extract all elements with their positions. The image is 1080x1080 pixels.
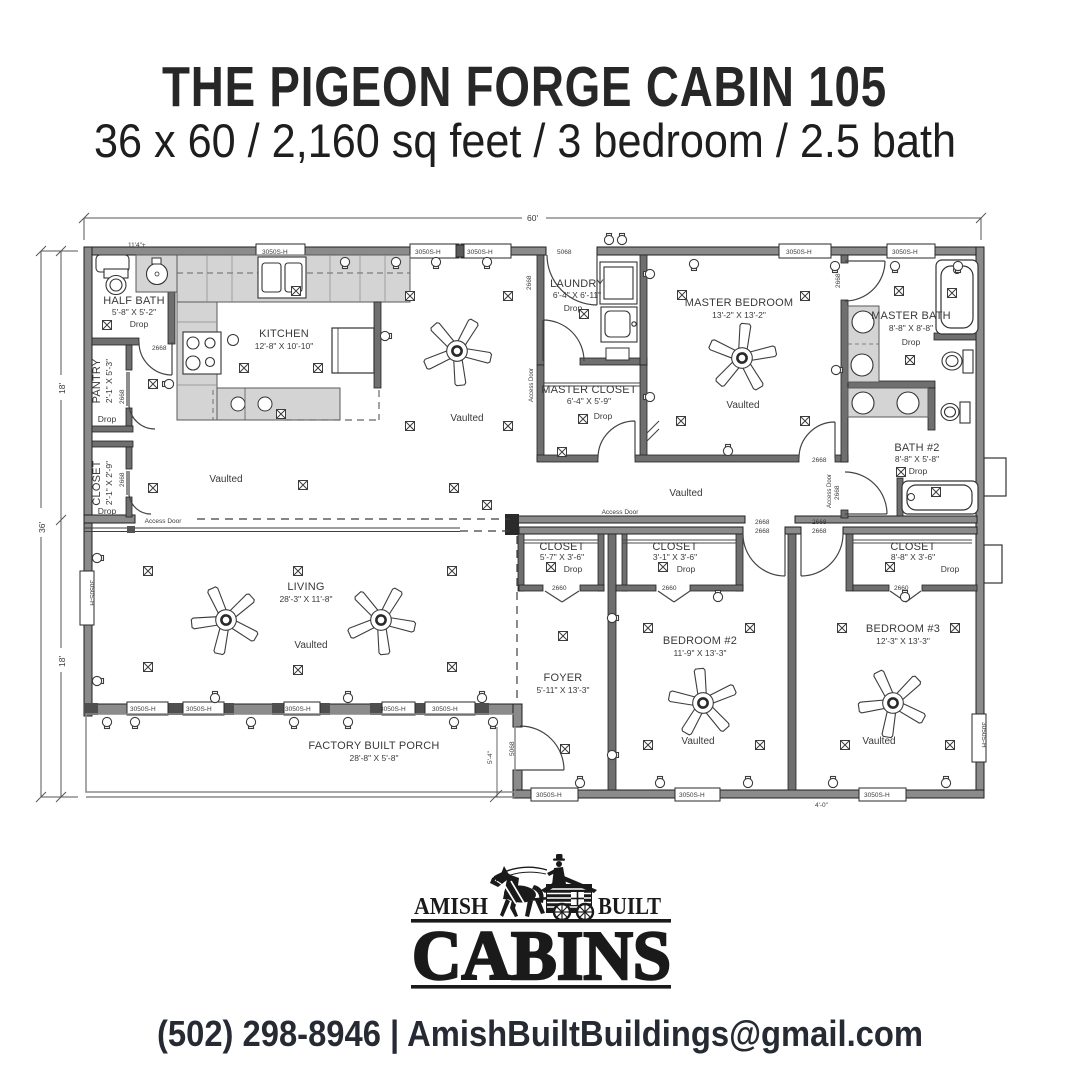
svg-text:5068: 5068 (509, 741, 516, 756)
svg-text:3050S-H: 3050S-H (892, 249, 918, 256)
svg-text:6'-4" X 6'-11": 6'-4" X 6'-11" (553, 290, 601, 300)
svg-text:3050S-H: 3050S-H (130, 706, 156, 713)
svg-text:6'-4" X 5'-9": 6'-4" X 5'-9" (567, 396, 611, 406)
svg-text:18': 18' (57, 656, 67, 667)
svg-text:2668: 2668 (119, 389, 126, 404)
svg-text:2668: 2668 (812, 528, 827, 535)
svg-text:8'-8" X 3'-6": 8'-8" X 3'-6" (891, 552, 935, 562)
svg-text:2668: 2668 (812, 519, 827, 526)
svg-text:11'-9" X 13'-3": 11'-9" X 13'-3" (673, 648, 726, 658)
svg-text:2668: 2668 (835, 273, 842, 288)
svg-text:13'-2" X 13'-2": 13'-2" X 13'-2" (712, 310, 766, 320)
svg-text:Drop: Drop (909, 466, 928, 476)
svg-text:BEDROOM #3: BEDROOM #3 (866, 623, 940, 635)
svg-text:2660: 2660 (552, 585, 567, 592)
svg-text:8'-8" X 5'-8": 8'-8" X 5'-8" (895, 454, 939, 464)
svg-text:12'-8" X 10'-10": 12'-8" X 10'-10" (255, 341, 313, 351)
svg-text:5068: 5068 (557, 249, 572, 256)
svg-text:Drop: Drop (594, 411, 613, 421)
svg-text:Vaulted: Vaulted (669, 488, 702, 499)
svg-text:LAUNDRY: LAUNDRY (550, 278, 604, 290)
svg-text:2660: 2660 (662, 585, 677, 592)
svg-text:3050S-H: 3050S-H (285, 706, 311, 713)
svg-text:Access Door: Access Door (145, 518, 183, 525)
svg-text:MASTER BATH: MASTER BATH (871, 310, 951, 322)
svg-text:KITCHEN: KITCHEN (259, 328, 309, 340)
svg-text:HALF BATH: HALF BATH (103, 295, 165, 307)
svg-text:2668: 2668 (755, 519, 770, 526)
svg-text:MASTER CLOSET: MASTER CLOSET (541, 384, 637, 396)
svg-text:60': 60' (527, 213, 538, 223)
svg-text:FACTORY BUILT PORCH: FACTORY BUILT PORCH (308, 740, 439, 752)
svg-text:3050S-H: 3050S-H (415, 249, 441, 256)
svg-text:Access Door: Access Door (827, 474, 833, 508)
svg-text:THE PIGEON FORGE CABIN 105: THE PIGEON FORGE CABIN 105 (162, 55, 887, 119)
svg-text:2'-1" X 2'-9": 2'-1" X 2'-9" (104, 461, 114, 505)
svg-text:2668: 2668 (119, 472, 126, 487)
svg-text:3050S-H: 3050S-H (864, 792, 890, 799)
svg-text:5'-11" X 13'-3": 5'-11" X 13'-3" (536, 685, 589, 695)
svg-text:Drop: Drop (902, 337, 921, 347)
svg-text:Drop: Drop (564, 564, 583, 574)
svg-text:3050S-H: 3050S-H (432, 706, 458, 713)
svg-text:Vaulted: Vaulted (450, 413, 483, 424)
svg-text:2668: 2668 (755, 528, 770, 535)
svg-text:4'-0": 4'-0" (815, 802, 829, 809)
svg-text:FOYER: FOYER (544, 672, 583, 684)
svg-text:5'-8" X 5'-2": 5'-8" X 5'-2" (112, 307, 156, 317)
svg-text:3050S-H: 3050S-H (679, 792, 705, 799)
svg-text:3050S-H: 3050S-H (786, 249, 812, 256)
svg-text:2'-1" X 5'-3": 2'-1" X 5'-3" (104, 359, 114, 403)
svg-text:Vaulted: Vaulted (862, 736, 895, 747)
svg-text:Drop: Drop (98, 414, 117, 424)
svg-text:(502) 298-8946 | AmishBuiltBui: (502) 298-8946 | AmishBuiltBuildings@gma… (157, 1013, 923, 1055)
svg-text:MASTER BEDROOM: MASTER BEDROOM (685, 297, 794, 309)
svg-text:18': 18' (57, 383, 67, 394)
svg-text:8'-8" X 8'-8": 8'-8" X 8'-8" (889, 323, 933, 333)
svg-text:CLOSET: CLOSET (91, 460, 103, 505)
svg-text:36': 36' (37, 522, 47, 533)
svg-text:Drop: Drop (130, 319, 149, 329)
svg-text:28'-3" X 11'-8": 28'-3" X 11'-8" (279, 594, 332, 604)
svg-text:5'-7" X 3'-6": 5'-7" X 3'-6" (540, 552, 584, 562)
svg-text:2668: 2668 (834, 485, 841, 500)
svg-text:Access Door: Access Door (602, 509, 640, 516)
svg-text:2668: 2668 (812, 457, 827, 464)
svg-text:Vaulted: Vaulted (209, 474, 242, 485)
svg-text:PANTRY: PANTRY (91, 358, 103, 403)
svg-text:Drop: Drop (98, 506, 117, 516)
svg-text:BATH #2: BATH #2 (894, 442, 939, 454)
svg-text:3050S-H: 3050S-H (980, 722, 987, 748)
svg-text:AMISH: AMISH (414, 894, 488, 920)
svg-text:Vaulted: Vaulted (726, 400, 759, 411)
svg-text:Access Door: Access Door (529, 368, 535, 402)
svg-text:2668: 2668 (526, 275, 533, 290)
svg-text:BEDROOM #2: BEDROOM #2 (663, 635, 737, 647)
svg-text:Vaulted: Vaulted (681, 736, 714, 747)
svg-text:BUILT: BUILT (598, 894, 661, 920)
svg-text:2668: 2668 (152, 345, 167, 352)
svg-text:3050S-H: 3050S-H (467, 249, 493, 256)
svg-text:LIVING: LIVING (287, 581, 324, 593)
svg-text:3050S-H: 3050S-H (380, 706, 406, 713)
svg-text:12'-3" X 13'-3": 12'-3" X 13'-3" (876, 636, 930, 646)
svg-text:5'-4": 5'-4" (487, 750, 494, 764)
svg-text:28'-8" X 5'-8": 28'-8" X 5'-8" (350, 753, 399, 763)
svg-text:Drop: Drop (677, 564, 696, 574)
svg-text:3050S-H: 3050S-H (536, 792, 562, 799)
svg-text:CABINS: CABINS (412, 918, 671, 995)
svg-text:3050S-H: 3050S-H (88, 580, 95, 606)
svg-text:Vaulted: Vaulted (294, 640, 327, 651)
svg-text:36 x 60 / 2,160 sq feet / 3 be: 36 x 60 / 2,160 sq feet / 3 bedroom / 2.… (94, 114, 956, 167)
svg-text:3050S-H: 3050S-H (186, 706, 212, 713)
svg-text:Drop: Drop (941, 564, 960, 574)
svg-text:3'-1" X 3'-6": 3'-1" X 3'-6" (653, 552, 697, 562)
